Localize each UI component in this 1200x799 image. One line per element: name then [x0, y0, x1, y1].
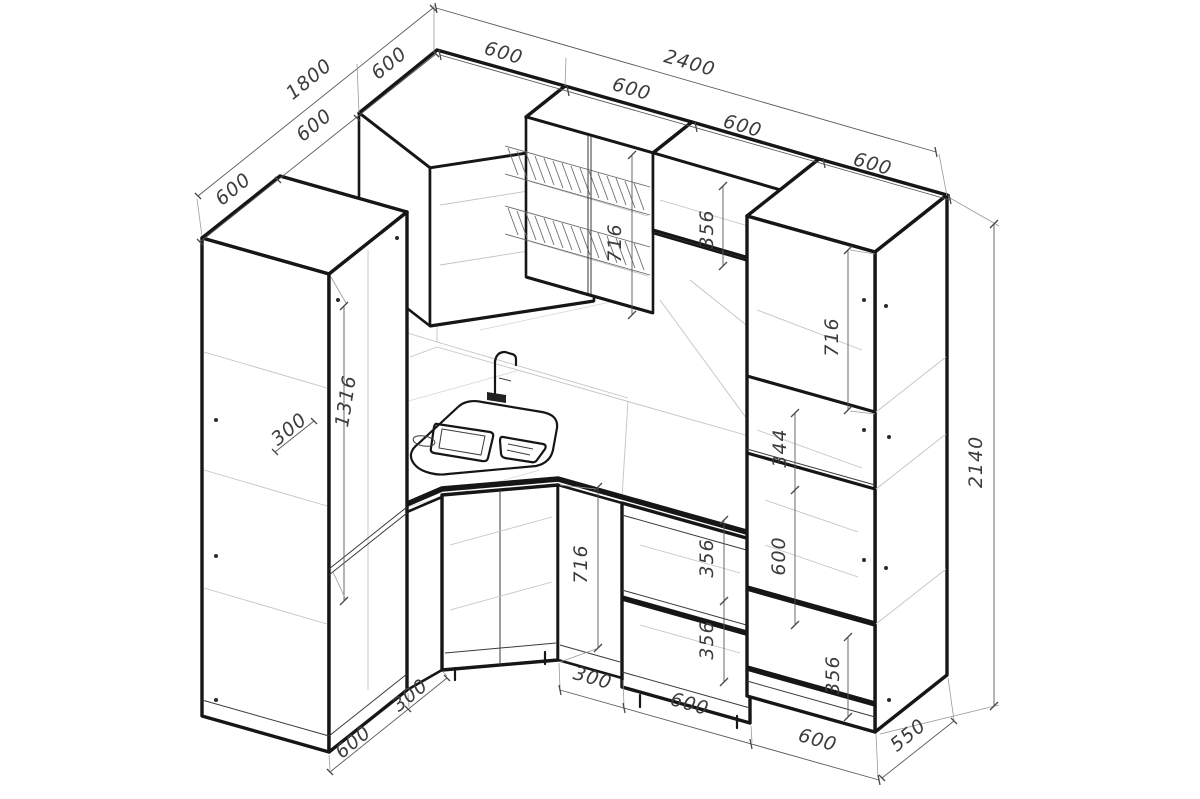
dim-total-height: 2140 [965, 436, 987, 488]
corner-sink [411, 401, 557, 474]
dim-dishrack-cabinet: 716 [604, 223, 626, 262]
left-tall-cabinet [202, 176, 407, 752]
dim-column-open-shelf: 344 [769, 428, 791, 467]
dim-column-bottom-drawer: 356 [822, 655, 844, 694]
drawing-canvas: 1800 600 600 600 2400 600 600 600 600 21… [0, 0, 1200, 799]
dim-drawer-1: 356 [696, 538, 718, 577]
dim-column-oven-cavity: 600 [768, 536, 790, 575]
dim-wall-left-total: 1800 [282, 54, 337, 104]
dim-column-depth: 550 [886, 714, 930, 756]
dim-bottom-column: 600 [796, 724, 840, 756]
dim-drawer-2: 356 [696, 620, 718, 659]
kitchen-isometric-drawing: 1800 600 600 600 2400 600 600 600 600 21… [0, 0, 1200, 799]
dim-base-cabinet-height: 716 [570, 544, 592, 583]
dim-small-wall-cabinet: 356 [696, 209, 718, 248]
dim-column-upper-cabinet: 716 [821, 317, 843, 356]
faucet [487, 352, 516, 403]
sink-bowl-drainer [500, 437, 546, 462]
dim-wall-left-seg-2: 600 [292, 104, 336, 146]
